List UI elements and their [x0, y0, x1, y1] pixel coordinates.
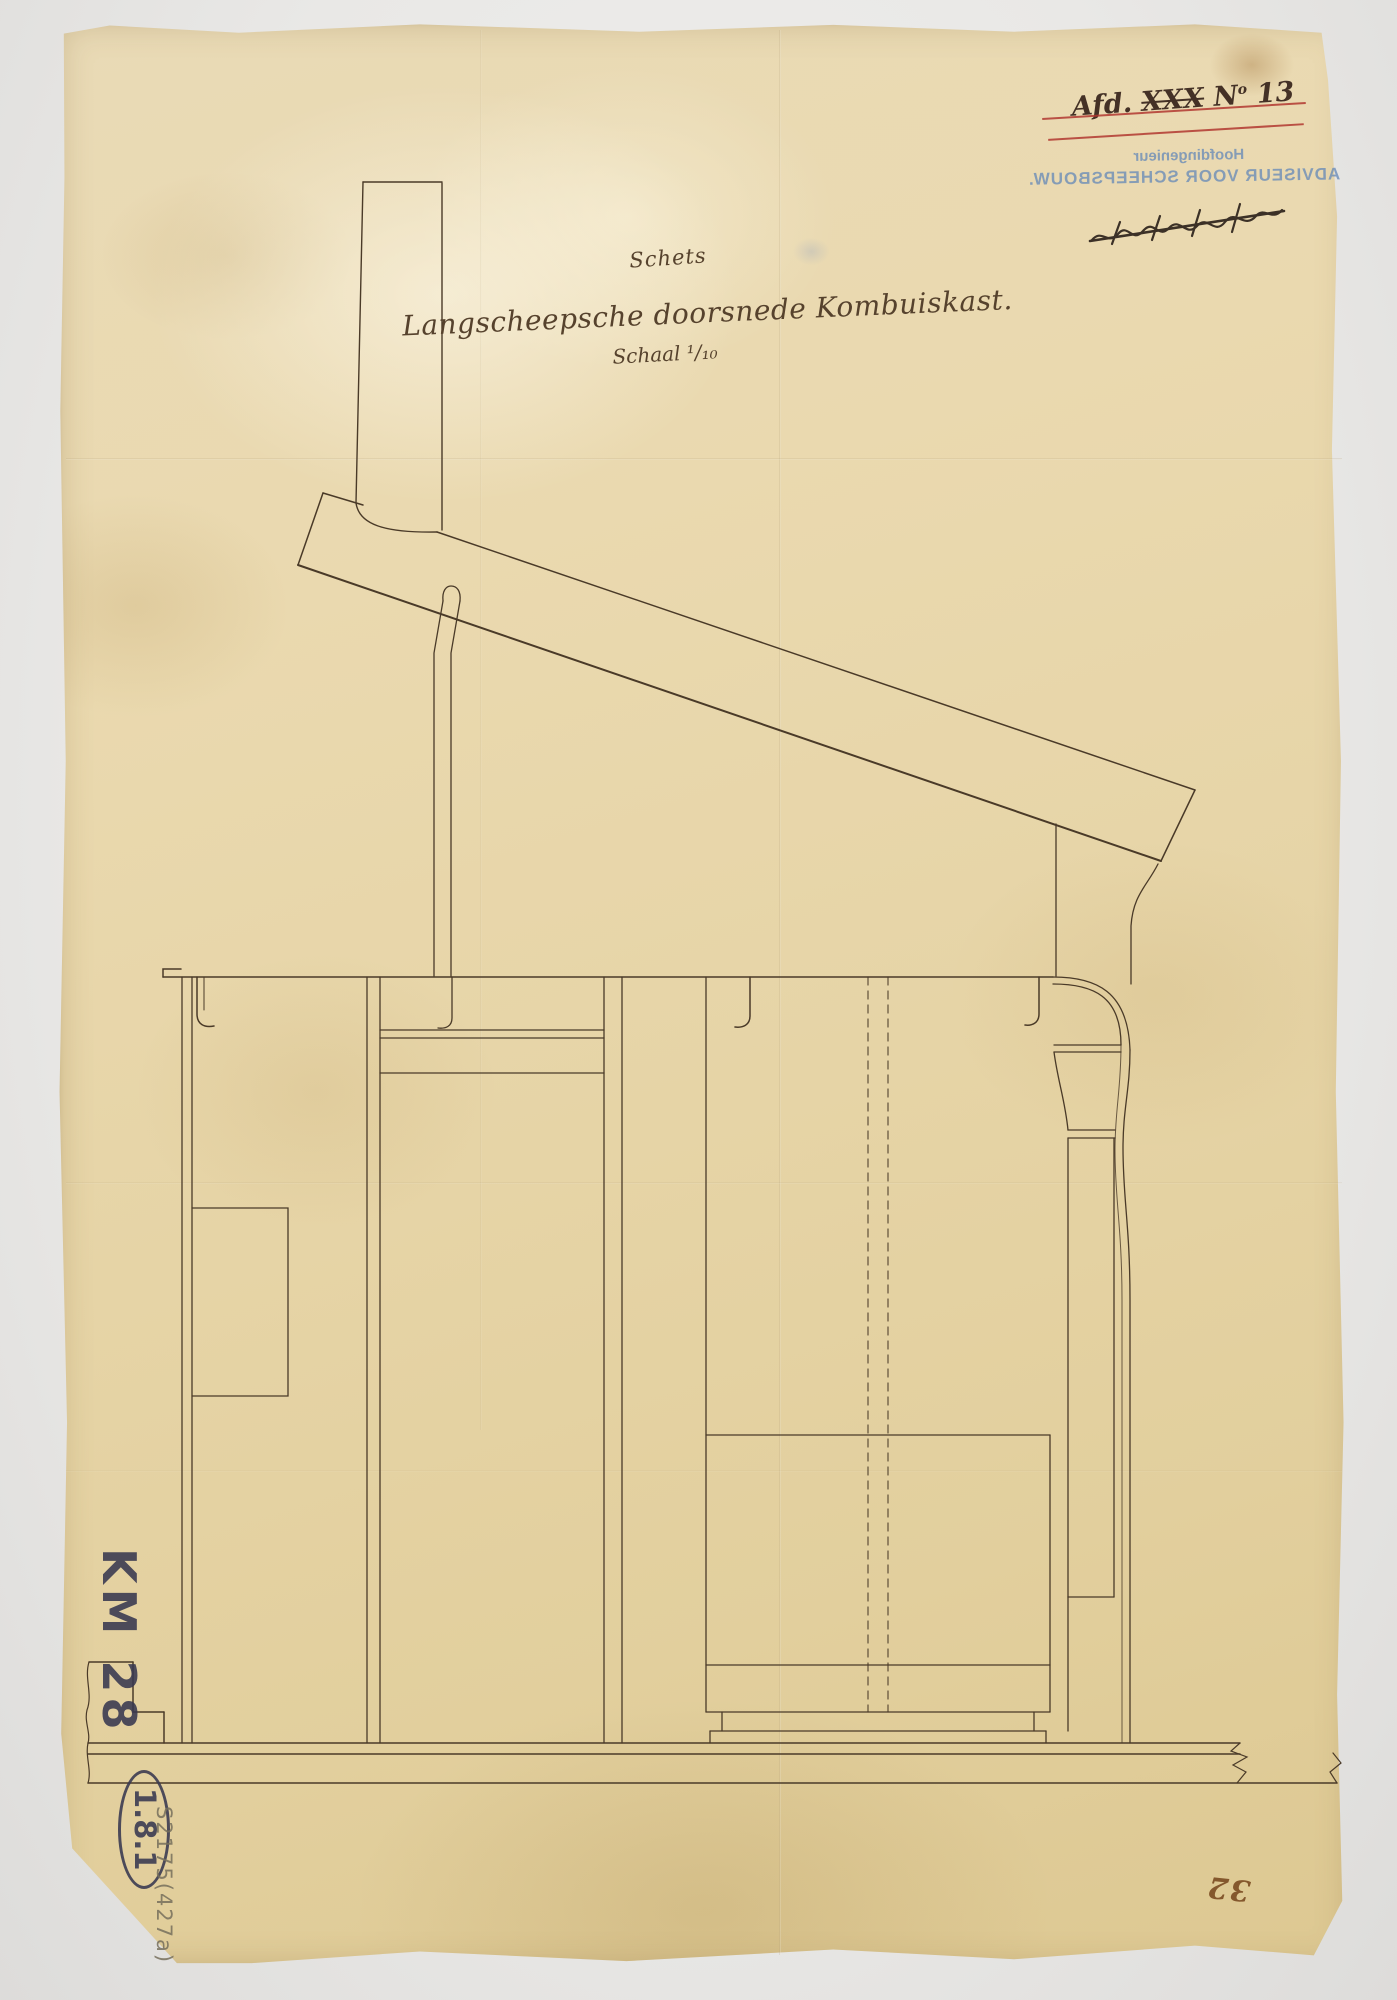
left-door-panel	[192, 1208, 288, 1396]
scanned-archival-sheet: Schets Langscheepsche doorsnede Kombuisk…	[0, 0, 1397, 2000]
left-wall	[182, 977, 192, 1743]
deck-duct	[1056, 824, 1158, 984]
vent-pipe	[434, 586, 460, 1028]
partition-left	[367, 977, 380, 1743]
smoke-funnel	[1054, 1045, 1121, 1138]
cabinet-corner-round	[1053, 977, 1130, 1050]
signature-flourish	[1090, 204, 1284, 244]
cabinet-top-beam	[163, 969, 1053, 1027]
chimney-outline	[356, 182, 442, 532]
partition-middle	[604, 977, 622, 1743]
stove-block	[706, 1435, 1050, 1743]
right-narrow-box	[1068, 1138, 1114, 1731]
mirrored-office-stamp: Hoofdingenieur ADVISEUR VOOR SCHEEPSBOUW…	[1038, 143, 1341, 190]
shelf-rails	[380, 1030, 604, 1073]
pencil-inventory-note: S2175(427a)	[152, 1806, 176, 1964]
floor-base	[86, 1662, 1341, 1783]
inventory-mark-km28: KM 28	[92, 1548, 146, 1734]
right-wall-scurve	[1115, 1045, 1130, 1743]
hidden-flue-dashed	[868, 977, 888, 1712]
sloped-deck-section	[298, 493, 1195, 861]
folio-number-32: 32	[1204, 1870, 1252, 1908]
